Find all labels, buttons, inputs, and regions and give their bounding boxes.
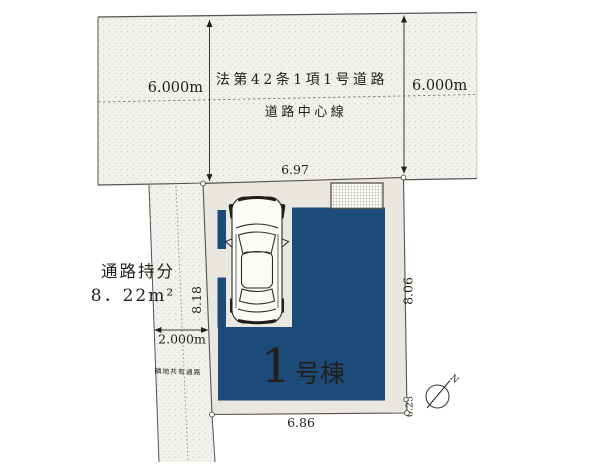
corner-marker-offset-point bbox=[404, 397, 408, 401]
corner-marker-bottom-right bbox=[405, 411, 410, 416]
lot-dimension-left: 8.18 bbox=[189, 286, 204, 314]
road-width-label-right: 6.000m bbox=[412, 78, 468, 94]
road-law-label: 法第42条1項1号道路 bbox=[216, 71, 388, 88]
road-surface bbox=[98, 13, 477, 186]
road-width-label-left: 6.000m bbox=[148, 80, 204, 96]
corner-marker-top-right bbox=[401, 175, 406, 180]
building-name-suffix: 号棟 bbox=[295, 359, 345, 388]
compass-north-label: N bbox=[448, 373, 461, 386]
lot-dimension-top: 6.97 bbox=[281, 162, 309, 177]
entrance-porch-hatched-area bbox=[331, 183, 383, 209]
lot-dimension-right: 8.06 bbox=[401, 277, 416, 305]
building-wall-upper bbox=[218, 210, 227, 249]
passage-share-area: 8．22m² bbox=[91, 286, 175, 306]
building-number: 1 bbox=[261, 339, 291, 394]
corner-marker-bottom-left bbox=[210, 412, 215, 417]
site-plan-drawing: 法第42条1項1号道路 道路中心線 6.000m 6.000m 2.000m 隣… bbox=[0, 0, 600, 468]
road-area: 法第42条1項1号道路 道路中心線 6.000m 6.000m bbox=[98, 13, 477, 186]
building-wall-lower bbox=[218, 278, 227, 328]
lot-dimension-bottom: 6.86 bbox=[287, 415, 315, 430]
passage-note-label: 隣地共有通路 bbox=[155, 366, 202, 376]
site-plan-svg: 法第42条1項1号道路 道路中心線 6.000m 6.000m 2.000m 隣… bbox=[0, 0, 600, 468]
passage-width-label: 2.000m bbox=[158, 332, 206, 347]
shared-passage-area: 2.000m 隣地共有通路 通路持分 8．22m² bbox=[91, 184, 215, 463]
north-arrow-icon: N bbox=[426, 373, 460, 408]
car-top-view-icon bbox=[226, 197, 289, 323]
passage-share-title: 通路持分 bbox=[101, 262, 175, 281]
road-centerline-label: 道路中心線 bbox=[265, 104, 348, 120]
corner-marker-top-left bbox=[201, 181, 206, 186]
